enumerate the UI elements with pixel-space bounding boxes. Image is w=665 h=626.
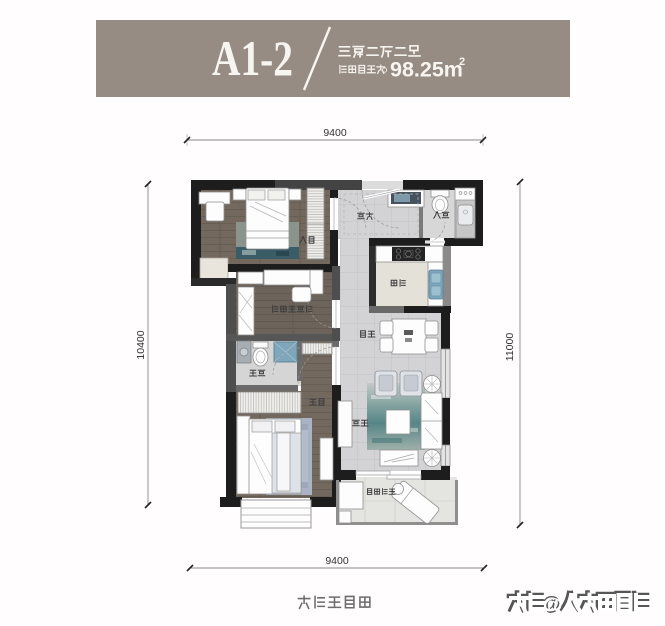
- svg-text:98.25m: 98.25m: [390, 58, 463, 82]
- svg-text:A1-2: A1-2: [212, 30, 293, 86]
- svg-text:9400: 9400: [325, 555, 349, 567]
- svg-text:11000: 11000: [504, 333, 516, 362]
- svg-text:10400: 10400: [135, 330, 147, 359]
- svg-text:@: @: [543, 595, 563, 617]
- svg-text:9400: 9400: [323, 127, 347, 139]
- svg-text:2: 2: [459, 56, 465, 68]
